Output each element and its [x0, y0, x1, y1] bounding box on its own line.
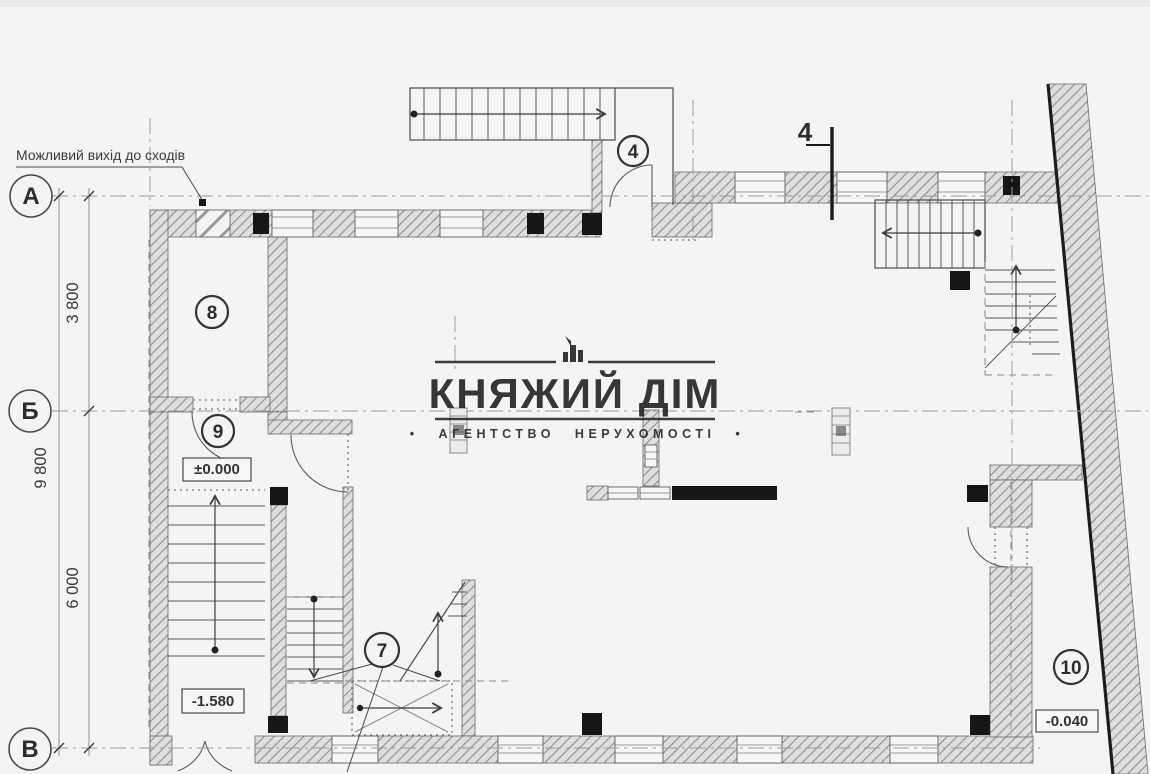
logo-subtitle: • АГЕНТСТВО НЕРУХОМОСТІ •	[410, 427, 745, 441]
grid-label-b: Б	[21, 398, 38, 425]
window	[640, 487, 670, 499]
window	[355, 210, 398, 237]
section-mark-label: 4	[798, 117, 813, 147]
room-label-9: 9	[213, 422, 224, 443]
grid-label-v: В	[21, 736, 38, 763]
room-label-4: 4	[628, 142, 639, 163]
elevation-entrance: -0.040	[1036, 710, 1098, 732]
top-edge-strip	[0, 0, 1150, 7]
room-label-7: 7	[377, 641, 388, 662]
grid-label-a: А	[22, 183, 39, 210]
floor-plan-svg: 3 800 9 800 6 000 А Б В 4 Можливий вихід…	[0, 0, 1150, 774]
logo-title: КНЯЖИЙ ДІМ	[429, 369, 722, 417]
dim-segment-b-v: 6 000	[64, 567, 82, 608]
window	[890, 736, 938, 763]
grid-bubble-a: А	[10, 175, 52, 217]
elevation-ground: ±0.000	[183, 458, 251, 481]
window	[938, 172, 985, 203]
dim-total: 9 800	[32, 447, 50, 488]
exit-note-text: Можливий вихід до сходів	[16, 147, 185, 163]
window	[608, 487, 638, 499]
grid-bubble-b: Б	[9, 390, 51, 432]
window	[645, 445, 657, 467]
dim-segment-a-b: 3 800	[64, 282, 82, 323]
window	[615, 736, 663, 763]
elevation-landing: -1.580	[182, 689, 244, 713]
room-bubble-10: 10	[1054, 650, 1088, 684]
window	[735, 172, 785, 203]
room-label-8: 8	[207, 303, 218, 324]
room-label-10: 10	[1060, 658, 1081, 679]
grid-bubble-v: В	[9, 728, 51, 770]
elevation-ground-text: ±0.000	[194, 461, 240, 478]
room-bubble-8: 8	[196, 296, 228, 328]
window	[498, 736, 543, 763]
filled-wall-bar	[672, 486, 777, 500]
room-bubble-9: 9	[202, 415, 234, 447]
floor-plan-page: 3 800 9 800 6 000 А Б В 4 Можливий вихід…	[0, 0, 1150, 774]
future-exit-panel	[196, 210, 230, 237]
window	[837, 172, 887, 203]
window	[737, 736, 782, 763]
window	[440, 210, 483, 237]
room-bubble-4: 4	[618, 136, 648, 166]
window	[272, 210, 313, 237]
elevation-landing-text: -1.580	[192, 693, 235, 710]
elevation-entrance-text: -0.040	[1046, 713, 1089, 730]
